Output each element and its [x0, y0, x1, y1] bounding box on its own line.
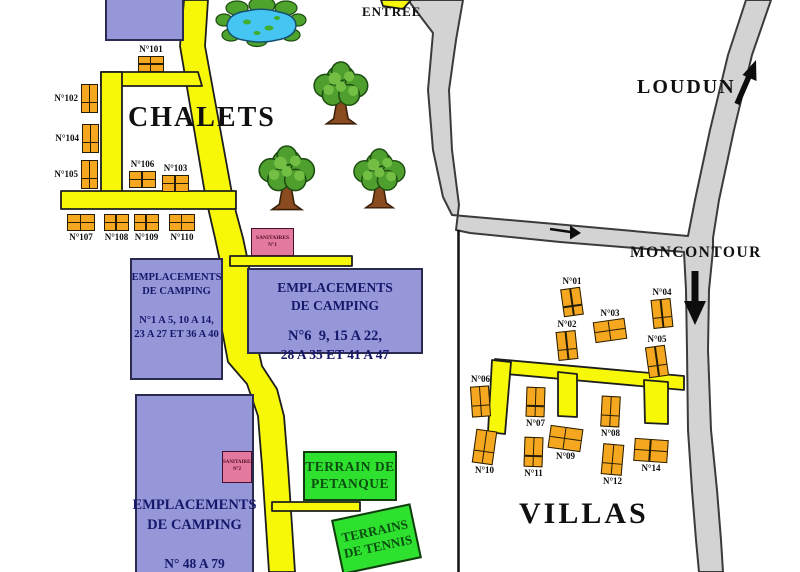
villa-building [470, 385, 491, 417]
chalet-number-label: N°105 [54, 169, 78, 179]
villa-number-label: N°01 [562, 276, 581, 286]
chalet-number-label: N°102 [54, 93, 78, 103]
villa-building [472, 429, 498, 466]
villa-building [651, 298, 674, 329]
villa-number-label: N°05 [647, 334, 666, 344]
chalet-building [134, 214, 159, 231]
chalet-number-label: N°101 [139, 44, 163, 54]
chalet-building [81, 160, 98, 189]
chalet-number-label: N°109 [135, 232, 159, 242]
villa-number-label: N°02 [557, 319, 576, 329]
chalet-number-label: N°104 [55, 133, 79, 143]
villa-building [525, 387, 545, 418]
chalets-area-label: CHALETS [128, 102, 276, 134]
chalet-number-label: N°110 [170, 232, 193, 242]
chalet-number-label: N°107 [69, 232, 93, 242]
campground-map: EMPLACEMENTS DE CAMPING N°1 A 5, 10 A 14… [0, 0, 800, 572]
moncontour-label: MONCONTOUR [630, 244, 762, 262]
chalet-building [162, 175, 189, 192]
villa-number-label: N°04 [652, 287, 671, 297]
villa-building [600, 396, 621, 428]
villa-building [556, 330, 579, 361]
chalet-building [104, 214, 129, 231]
villa-building [523, 437, 543, 468]
chalet-building [67, 214, 95, 231]
villa-building [593, 318, 628, 343]
villa-number-label: N°11 [524, 468, 543, 478]
villa-number-label: N°07 [526, 418, 545, 428]
chalet-building [82, 124, 99, 153]
chalet-building [169, 214, 195, 231]
villa-number-label: N°09 [556, 451, 575, 461]
villa-building [645, 345, 669, 378]
chalet-number-label: N°103 [164, 163, 188, 173]
chalet-number-label: N°108 [105, 232, 129, 242]
loudun-label: LOUDUN [637, 76, 736, 99]
villa-number-label: N°03 [600, 308, 619, 318]
villa-number-label: N°08 [601, 428, 620, 438]
chalet-building [138, 56, 164, 72]
villa-number-label: N°12 [603, 476, 622, 486]
chalet-building [81, 84, 98, 113]
villa-number-label: N°14 [641, 463, 660, 473]
entrance-label: ENTREE [362, 4, 421, 20]
villas-area-label: VILLAS [519, 497, 649, 531]
villa-building [633, 438, 669, 463]
villa-number-label: N°06 [471, 374, 490, 384]
chalet-building [129, 171, 156, 188]
villa-number-label: N°10 [475, 465, 494, 475]
villa-building [548, 425, 584, 452]
villa-building [560, 287, 584, 318]
villa-building [601, 443, 625, 476]
chalet-number-label: N°106 [131, 159, 155, 169]
